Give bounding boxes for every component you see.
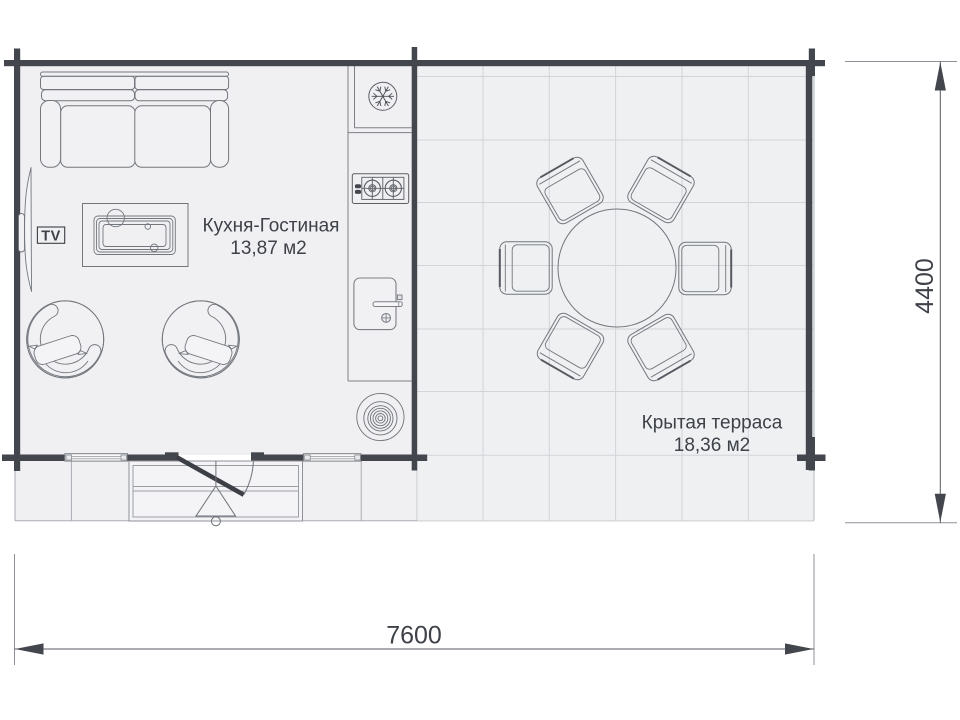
svg-text:4400: 4400 [911, 258, 939, 314]
svg-text:13,87 м2: 13,87 м2 [230, 238, 306, 259]
svg-text:Крытая терраса: Крытая терраса [642, 413, 783, 434]
svg-text:TV: TV [41, 228, 61, 244]
svg-text:7600: 7600 [386, 622, 442, 650]
svg-text:18,36 м2: 18,36 м2 [674, 435, 750, 456]
svg-text:Кухня-Гостиная: Кухня-Гостиная [203, 216, 340, 237]
